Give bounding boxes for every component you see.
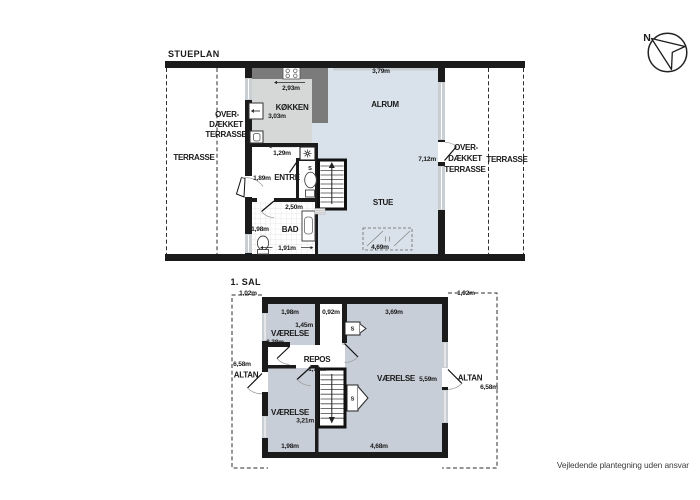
bad-label: BAD — [282, 225, 299, 234]
bad-width-dim: 1,91m — [278, 245, 296, 252]
north-label: N — [643, 32, 651, 44]
kitchen-entre-wall — [245, 143, 318, 147]
overdaekket-left-label-1: OVER- — [215, 110, 239, 119]
upper-top-wall — [262, 297, 448, 304]
radiator-icon — [315, 209, 325, 215]
bad-depth-dim: 1,98m — [251, 226, 269, 233]
altan-left-door-opening — [262, 372, 268, 392]
altan-left-label: ALTAN — [234, 371, 259, 380]
bottom-wall — [165, 254, 525, 261]
terrasse-right-label: TERRASSE — [486, 155, 528, 164]
terrasse-left-label: TERRASSE — [173, 153, 215, 162]
sw-room-wall-a — [268, 365, 296, 369]
nw-width-dim: 1,98m — [281, 309, 299, 316]
altan-right-door-opening — [442, 368, 448, 387]
cooktop-icon — [283, 68, 300, 80]
wc-closet-label: S — [308, 166, 312, 172]
e-depth-dim: 5,59m — [419, 376, 437, 383]
hall-left-wall — [315, 304, 320, 345]
altan-right-label: ALTAN — [458, 374, 483, 383]
overdaekket-right-label-1: OVER- — [454, 143, 478, 152]
closet-stairs-label: S — [351, 397, 355, 403]
overdaekket-left-label-2: DÆKKET — [209, 120, 243, 129]
terrace-door-opening — [438, 142, 445, 162]
vaerelse-e-label: VÆRELSE — [377, 374, 416, 383]
first-floor-plan: 1. SAL 1,02m 6,58m ALTAN 1,98m 0,92m 3,6… — [231, 277, 499, 468]
entre-width-dim: 1,29m — [273, 150, 291, 157]
koekken-width-dim: 2,93m — [282, 85, 300, 92]
repos-width-dim: 1,70m — [308, 366, 326, 373]
wc-sink-icon — [305, 172, 317, 197]
alrum-width-dim: 3,79m — [372, 68, 390, 75]
overdaekket-right-label-2: DÆKKET — [448, 154, 482, 163]
entre-bad-wall — [245, 198, 318, 202]
sw-depth-dim: 3,21m — [296, 418, 314, 425]
sw-width-dim: 1,98m — [281, 443, 299, 450]
altan-right-length-dim: 6,58m — [480, 384, 498, 391]
ground-floor-plan: STUEPLAN TERRASSE OVER- DÆKKET TERRASSE … — [165, 49, 529, 261]
altan-left-length-dim: 6,58m — [233, 361, 251, 368]
fridge-icon — [249, 103, 263, 119]
disclaimer-text: Vejledende plantegning uden ansvar — [557, 460, 689, 470]
ground-floor-title: STUEPLAN — [168, 49, 220, 59]
overdaekket-right-label-3: TERRASSE — [444, 165, 486, 174]
entre-bad-dim: 2,50m — [285, 204, 303, 211]
repos-label: REPOS — [304, 355, 331, 364]
e-width-dim: 4,68m — [370, 443, 388, 450]
entre-depth-dim: 1,89m — [253, 175, 271, 182]
stairs-down — [319, 369, 346, 427]
overdaekket-left-label-3: TERRASSE — [205, 130, 247, 139]
skylight-width-dim: 4,69m — [371, 244, 389, 251]
alrum-label: ALRUM — [371, 100, 399, 109]
nw-depth-dim: 1,45m — [295, 322, 313, 329]
bad-door-opening — [257, 198, 274, 202]
fan-icon — [300, 147, 315, 160]
stairs-up — [319, 160, 346, 209]
toilet-icon — [257, 236, 268, 254]
stue-height-dim: 7,12m — [418, 156, 436, 163]
floorplan-drawing: STUEPLAN TERRASSE OVER- DÆKKET TERRASSE … — [0, 0, 700, 500]
floorplan-page: STUEPLAN TERRASSE OVER- DÆKKET TERRASSE … — [0, 0, 700, 500]
kitchen-counter-column — [312, 79, 328, 123]
stair-side-wall — [315, 368, 319, 452]
first-floor-title: 1. SAL — [231, 277, 262, 287]
upper-bottom-wall — [262, 452, 448, 458]
vaerelse-sw-label: VÆRELSE — [271, 408, 310, 417]
top-wall — [165, 61, 525, 68]
altan-right-depth-dim: 1,92m — [457, 290, 475, 297]
altan-left-depth-dim: 1,02m — [239, 290, 257, 297]
stue-label: STUE — [373, 198, 394, 207]
vanity-icon — [302, 211, 315, 241]
front-door-opening — [245, 176, 252, 197]
hall-width-dim: 0,92m — [322, 309, 340, 316]
e-width-top-dim: 3,69m — [385, 309, 403, 316]
entre-label: ENTRÉ — [274, 173, 301, 182]
compass: N — [643, 32, 687, 72]
koekken-depth-dim: 3,03m — [268, 113, 286, 120]
closet-hall-label: S — [351, 327, 355, 333]
nw-depth-inner-dim: 2,38m — [266, 339, 284, 346]
north-arrow-icon — [652, 39, 686, 70]
koekken-label: KØKKEN — [276, 103, 309, 112]
washer-icon — [250, 131, 263, 143]
vaerelse-nw-label: VÆRELSE — [271, 329, 310, 338]
